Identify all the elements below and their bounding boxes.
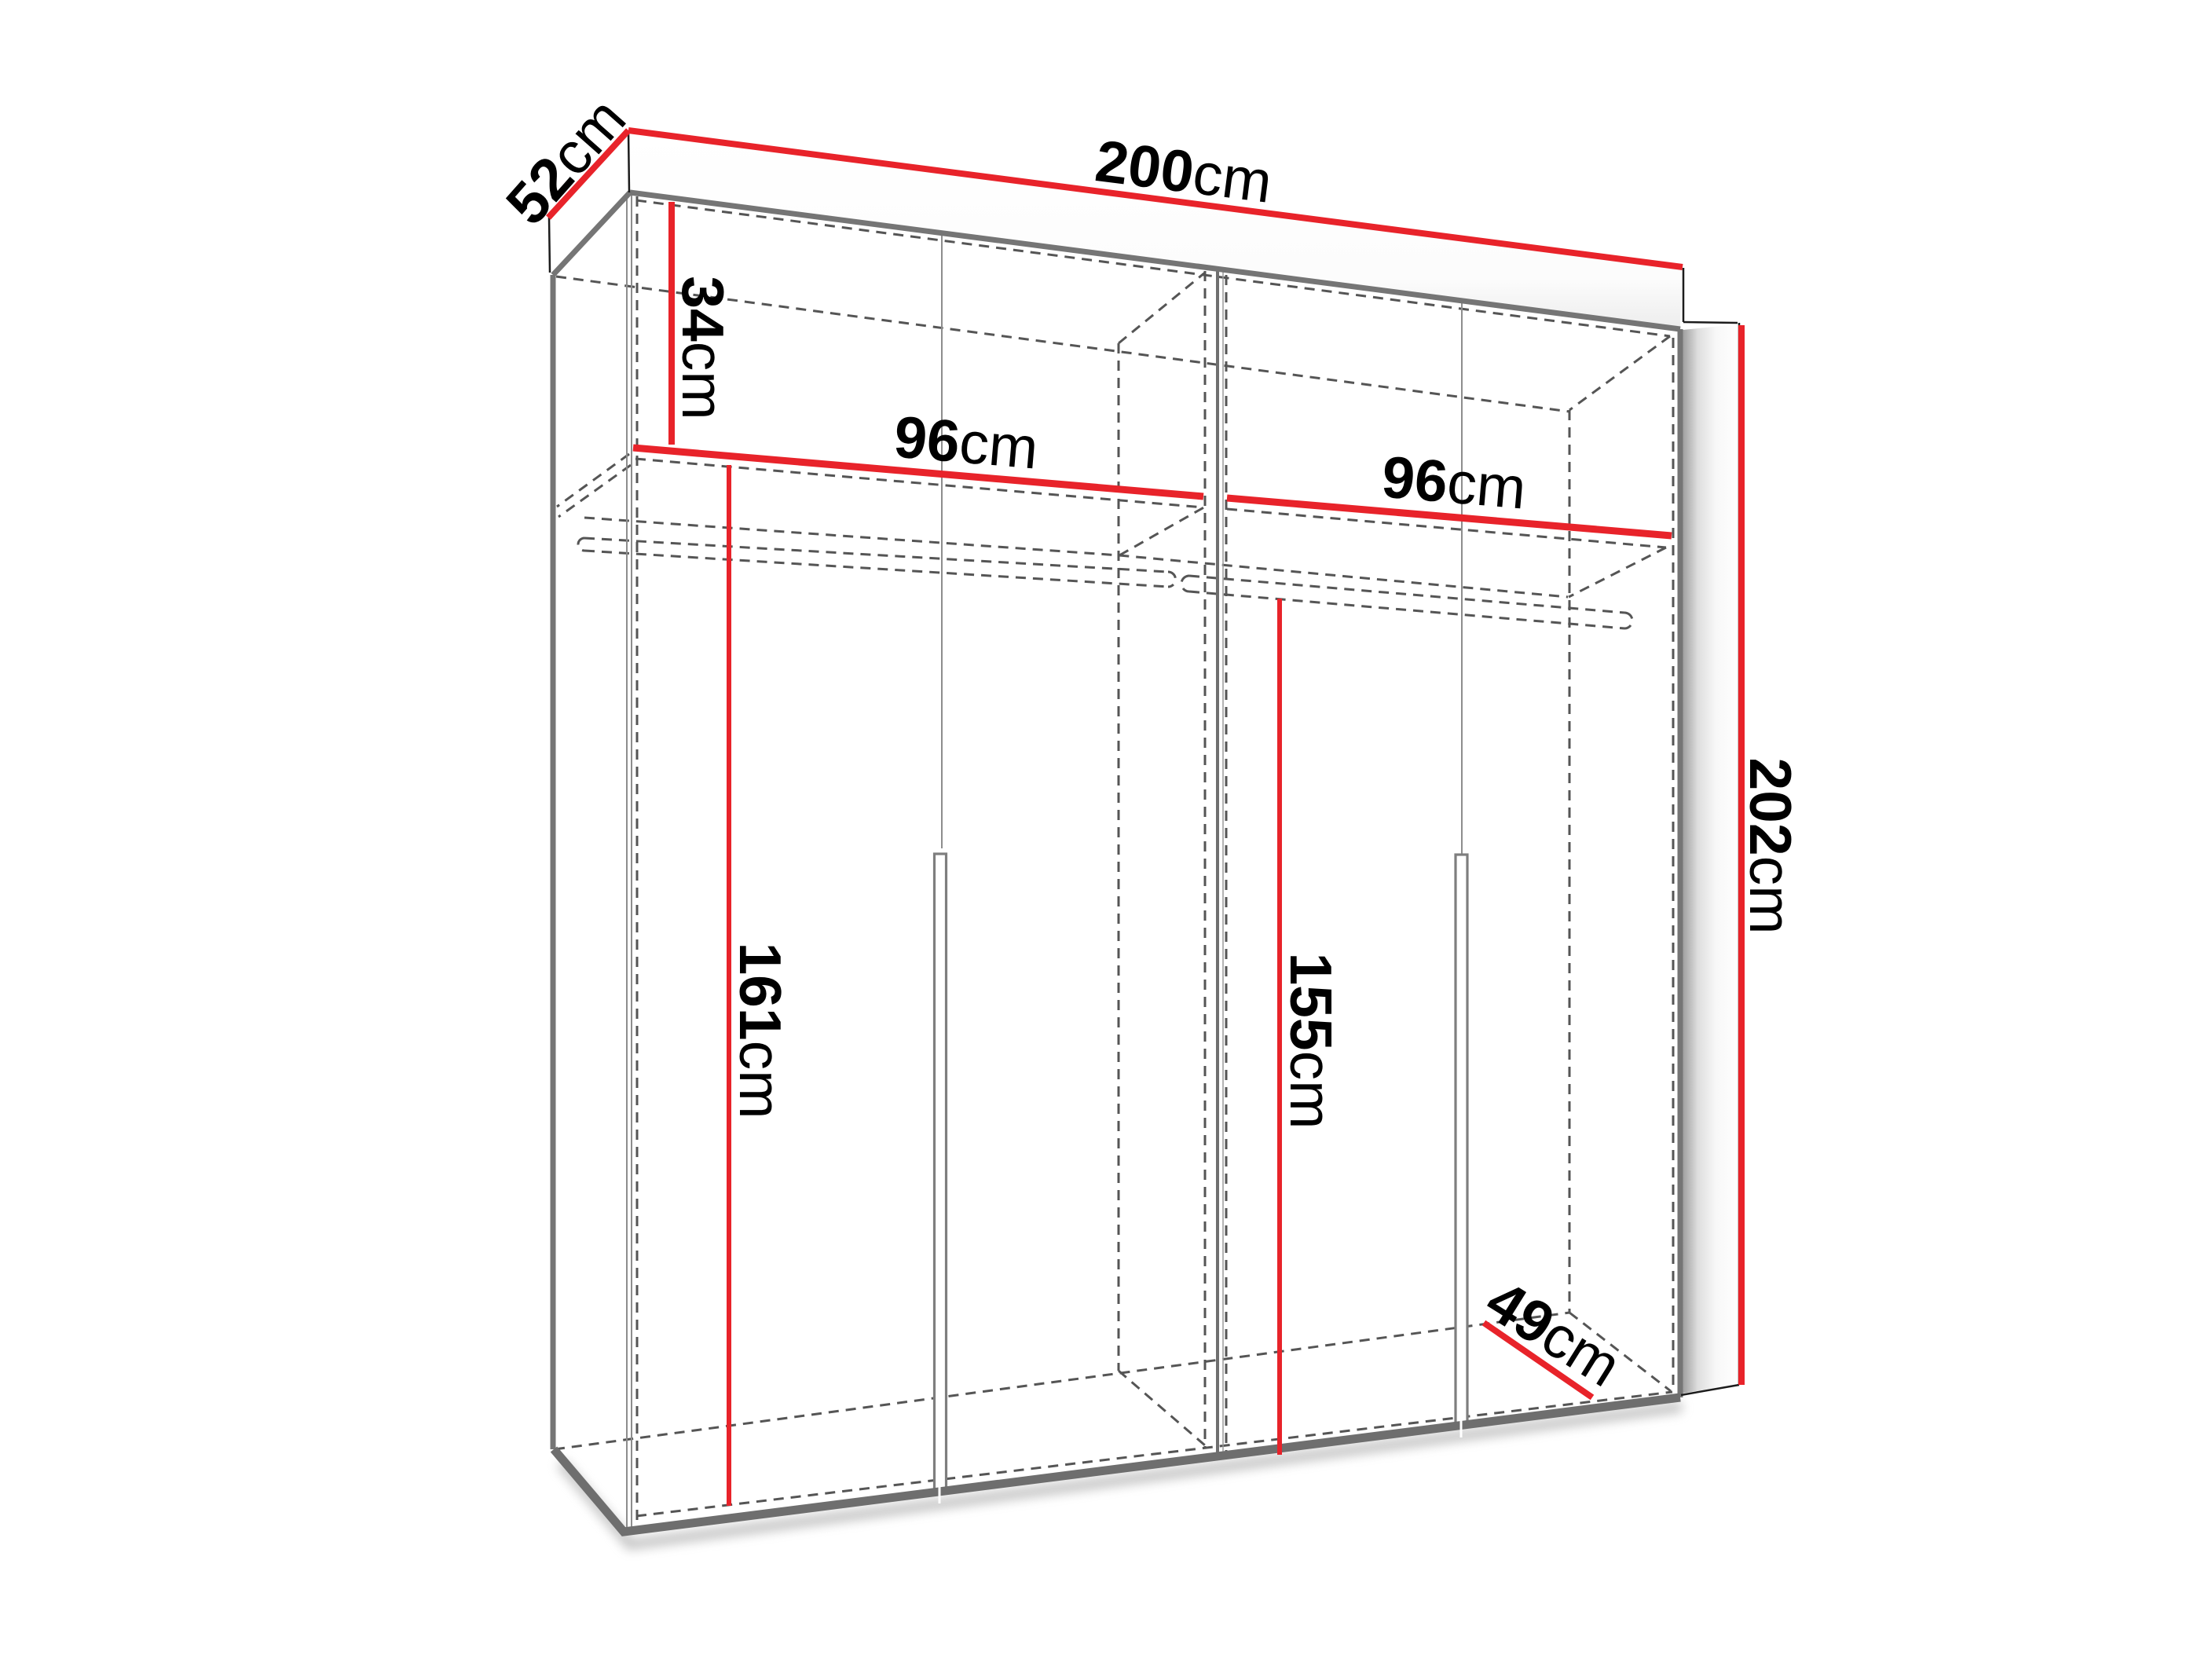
svg-text:155cm: 155cm (1278, 952, 1344, 1129)
svg-text:96cm: 96cm (892, 403, 1041, 481)
svg-text:161cm: 161cm (727, 942, 793, 1119)
svg-text:34cm: 34cm (670, 276, 736, 419)
svg-text:96cm: 96cm (1379, 443, 1529, 521)
svg-text:202cm: 202cm (1738, 757, 1804, 934)
